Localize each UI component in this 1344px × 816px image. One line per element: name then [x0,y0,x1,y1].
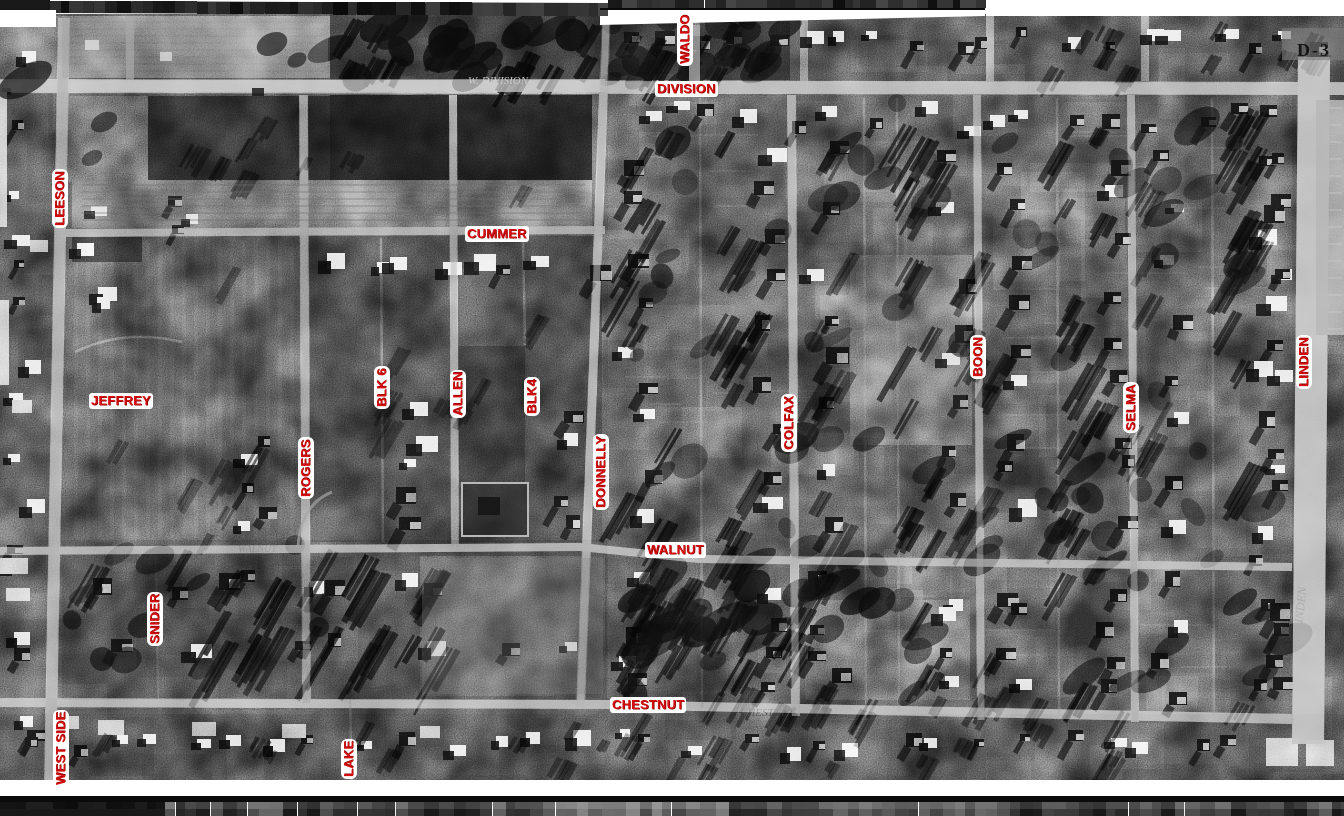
svg-text:D-3: D-3 [1297,40,1331,60]
